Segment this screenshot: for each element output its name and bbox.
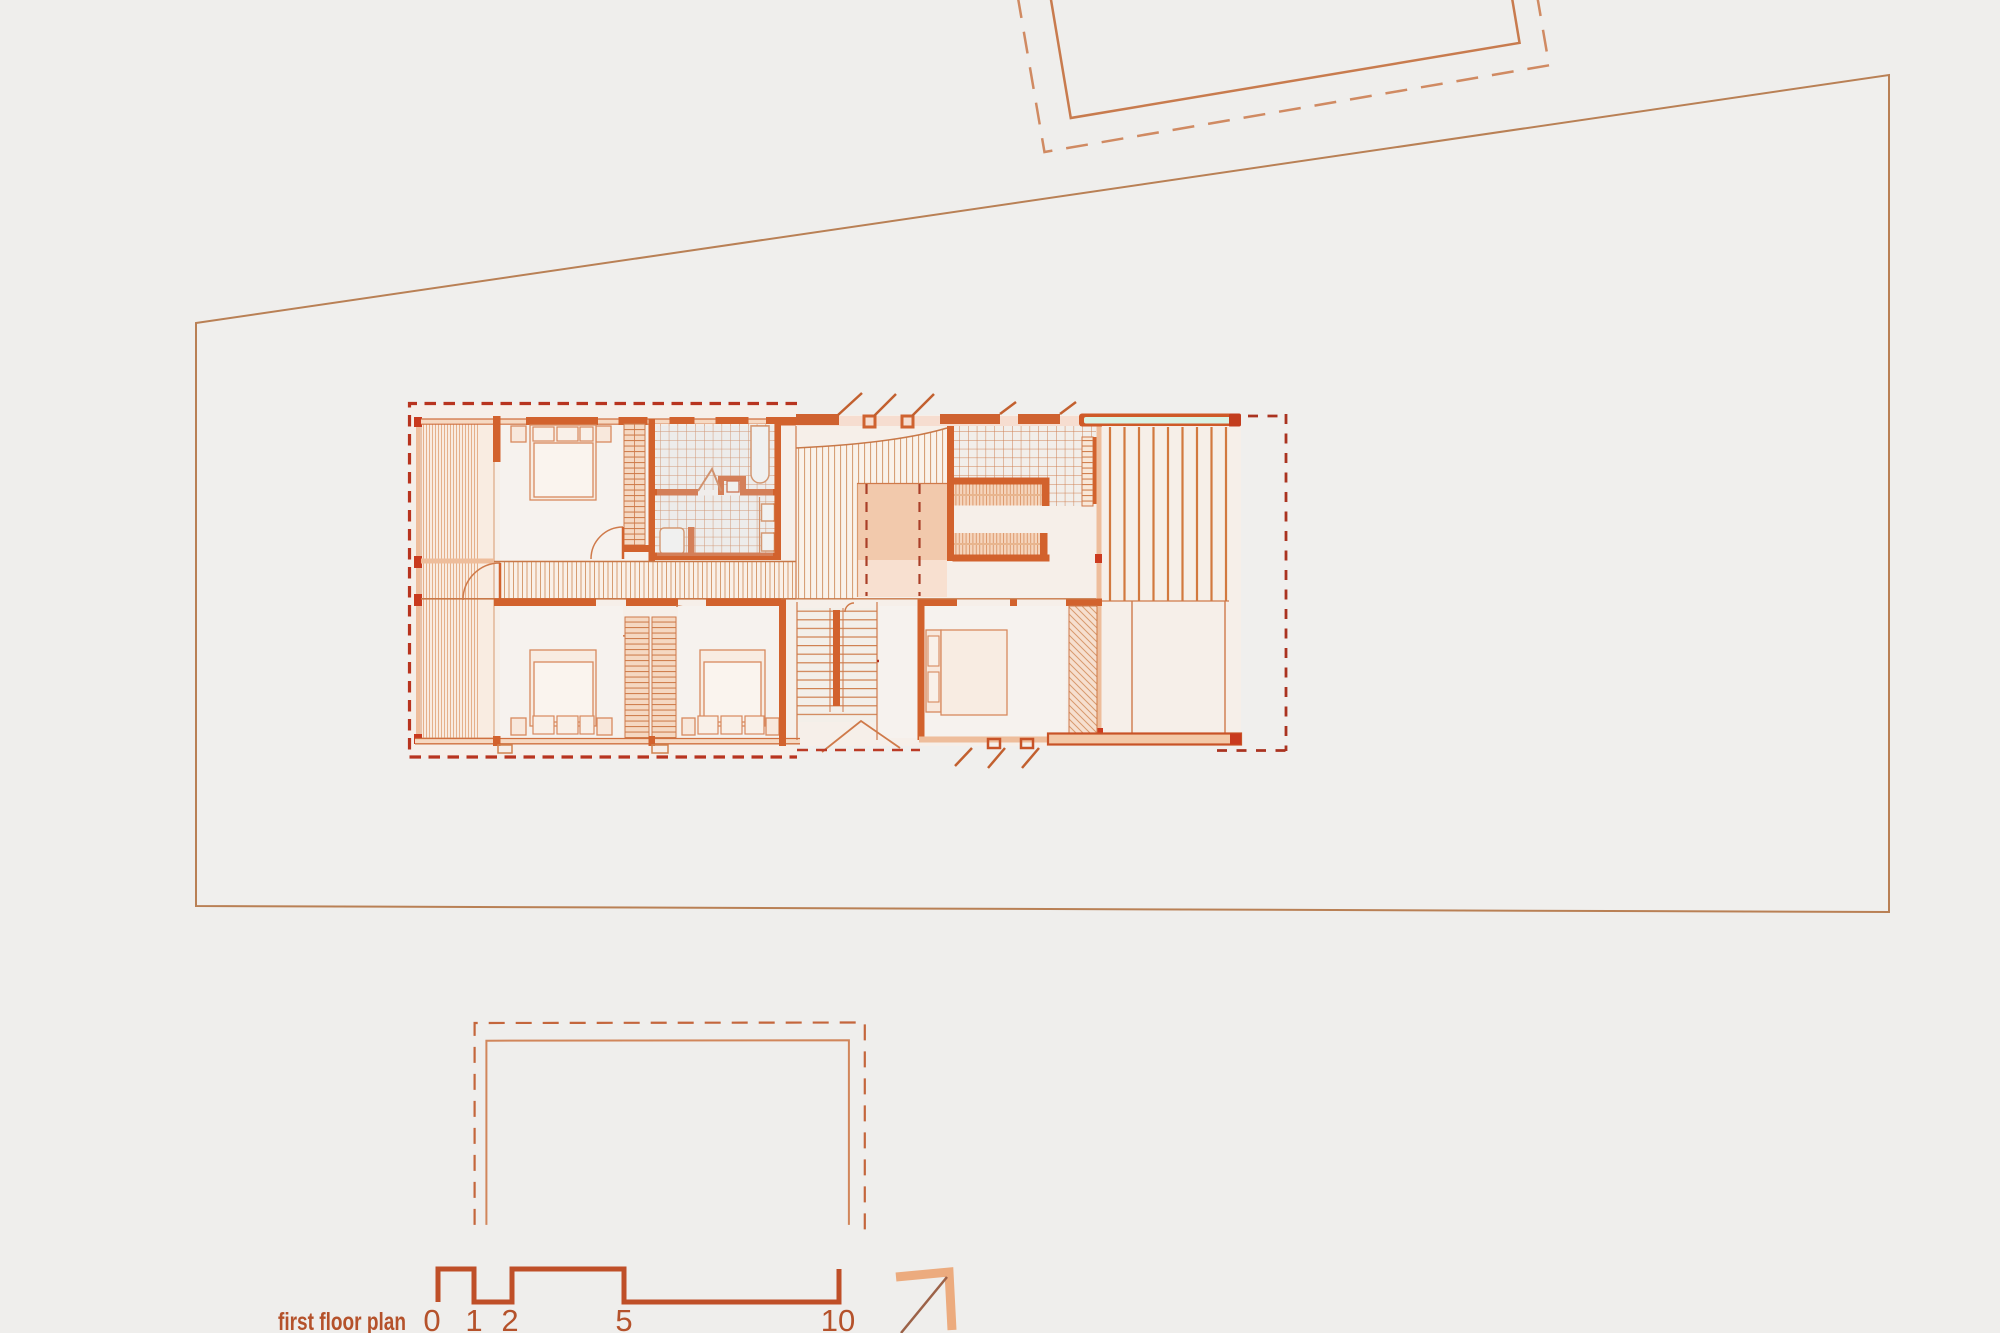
svg-text:2: 2 <box>501 1303 518 1333</box>
svg-text:10: 10 <box>821 1303 855 1333</box>
svg-text:first floor plan: first floor plan <box>278 1308 406 1333</box>
svg-text:5: 5 <box>615 1303 632 1333</box>
svg-text:1: 1 <box>465 1303 482 1333</box>
svg-text:0: 0 <box>423 1303 440 1333</box>
